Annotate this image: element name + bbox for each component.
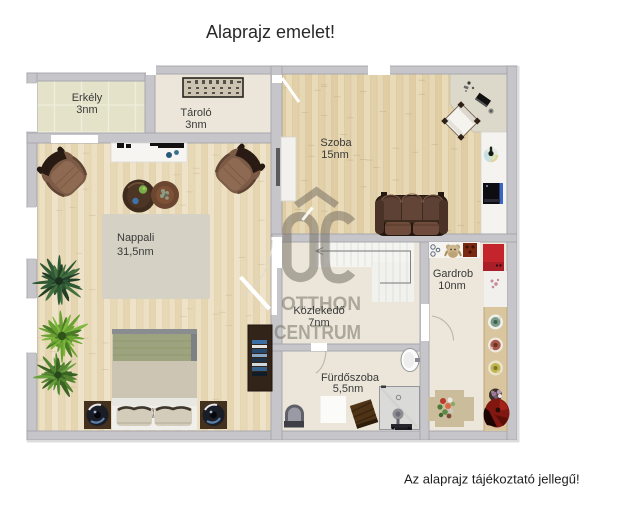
svg-text:31,5nm: 31,5nm	[117, 246, 154, 258]
svg-text:5,5nm: 5,5nm	[333, 383, 364, 395]
svg-text:Alaprajz emelet!: Alaprajz emelet!	[206, 22, 335, 42]
svg-text:Szoba: Szoba	[320, 137, 352, 149]
svg-text:3nm: 3nm	[185, 119, 206, 131]
svg-text:15nm: 15nm	[321, 149, 349, 161]
svg-text:Nappali: Nappali	[117, 232, 154, 244]
svg-text:Közlekedő: Közlekedő	[293, 305, 344, 317]
svg-text:7nm: 7nm	[308, 317, 329, 329]
svg-text:Tároló: Tároló	[180, 107, 211, 119]
svg-text:10nm: 10nm	[438, 280, 466, 292]
svg-text:3nm: 3nm	[76, 104, 97, 116]
svg-text:Gardrob: Gardrob	[433, 268, 473, 280]
svg-text:Az alaprajz tájékoztató jelleg: Az alaprajz tájékoztató jellegű!	[404, 472, 580, 487]
svg-text:Erkély: Erkély	[72, 92, 103, 104]
